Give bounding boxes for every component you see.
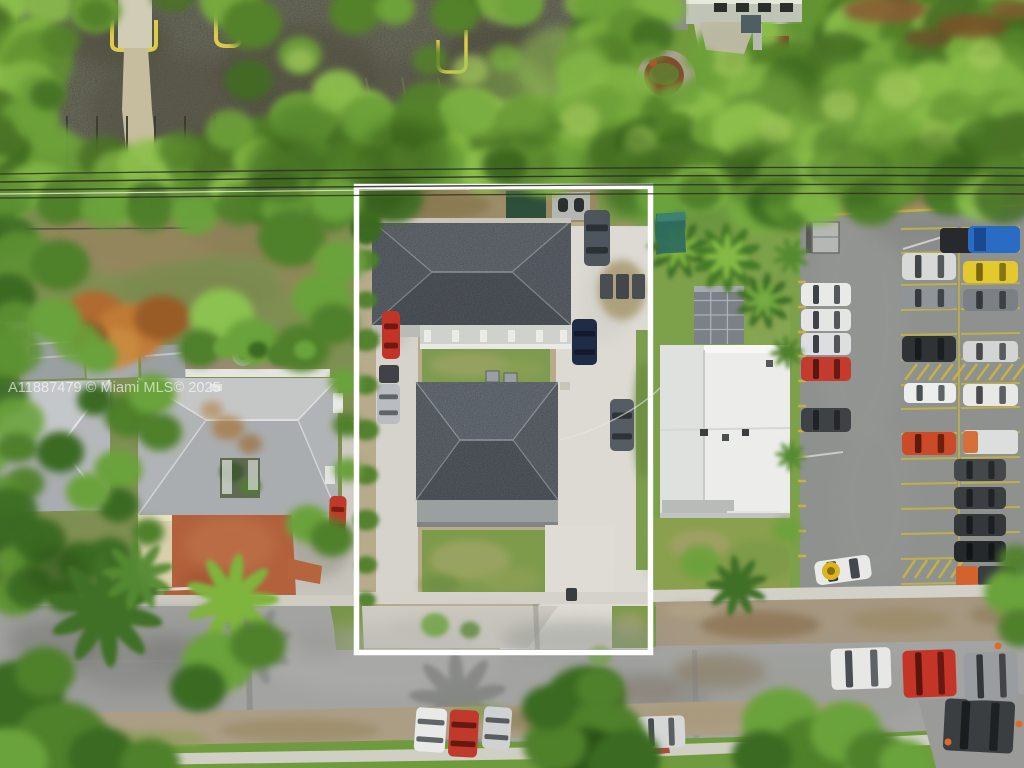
- svg-text:A11887479 © Miami MLS© 2025: A11887479 © Miami MLS© 2025: [8, 380, 221, 396]
